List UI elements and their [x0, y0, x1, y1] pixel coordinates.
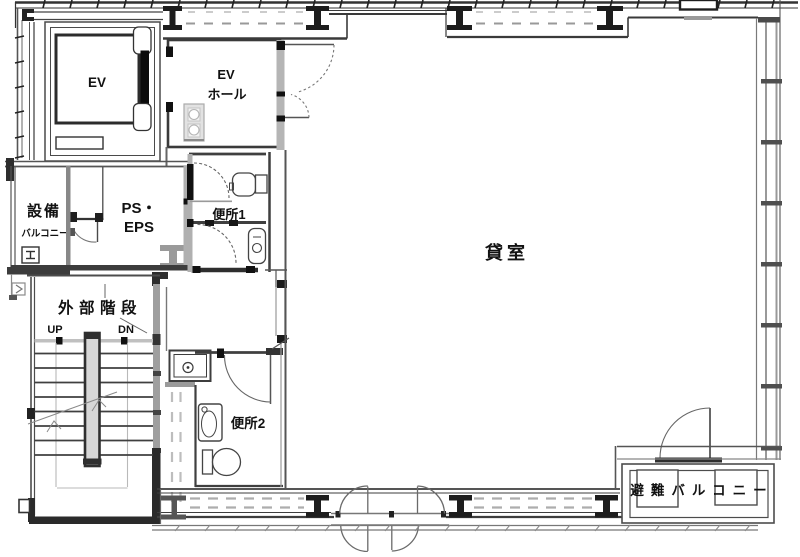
svg-text:バルコニー: バルコニー — [21, 228, 68, 240]
svg-text:便所1: 便所1 — [212, 207, 245, 222]
svg-text:外部階段: 外部階段 — [58, 298, 142, 317]
svg-text:便所2: 便所2 — [231, 415, 266, 431]
svg-text:UP: UP — [47, 324, 62, 336]
svg-text:避難バルコニー: 避難バルコニー — [630, 482, 773, 498]
svg-text:EV: EV — [217, 67, 235, 82]
svg-text:DN: DN — [118, 324, 134, 336]
svg-text:ホール: ホール — [207, 87, 246, 102]
svg-text:設備: 設備 — [27, 202, 61, 220]
svg-text:PS・: PS・ — [121, 200, 156, 217]
svg-text:EV: EV — [88, 75, 106, 90]
svg-text:貸室: 貸室 — [485, 242, 529, 263]
svg-text:EPS: EPS — [124, 219, 154, 236]
